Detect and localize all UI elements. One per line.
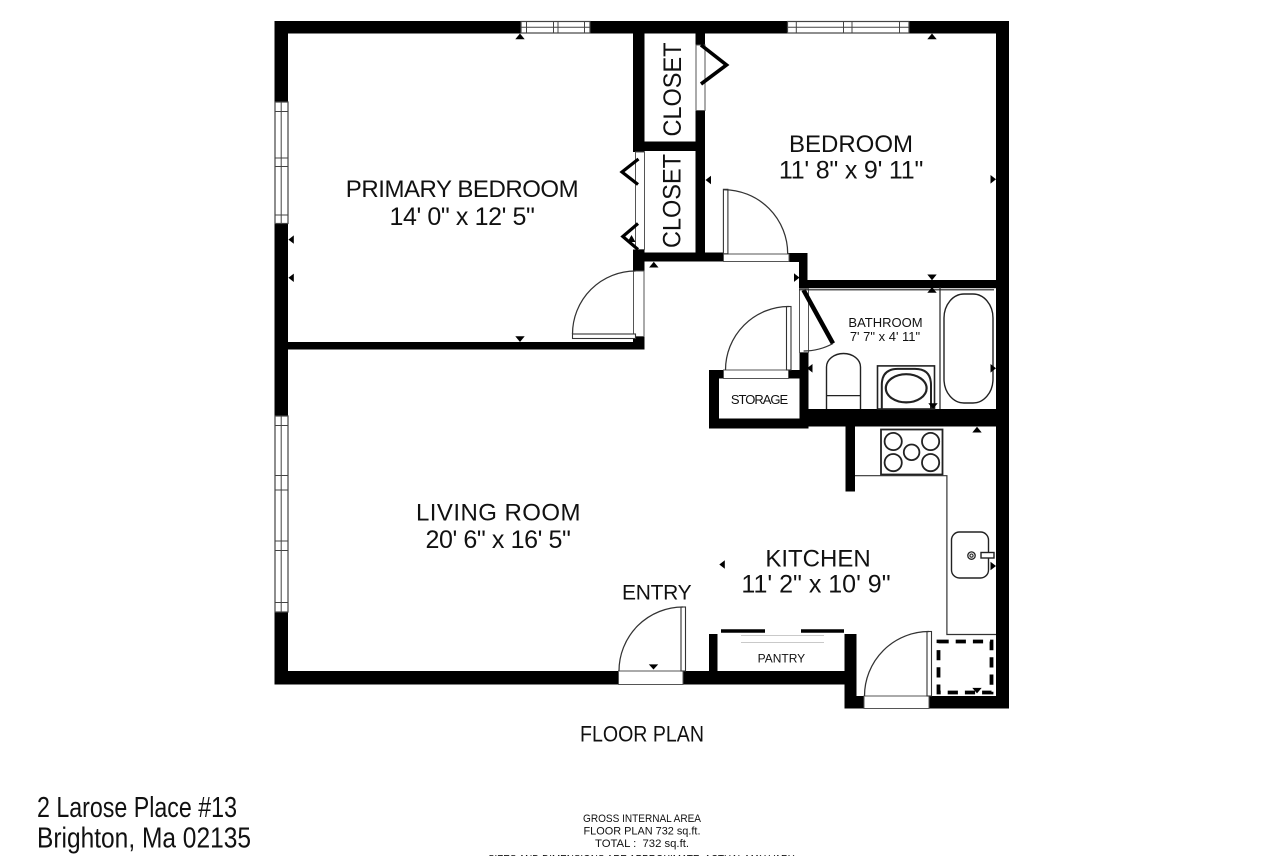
svg-text:11' 2" x 10' 9": 11' 2" x 10' 9" <box>741 571 890 599</box>
svg-text:BATHROOM: BATHROOM <box>848 315 922 330</box>
svg-text:TOTAL : 732 sq.ft.: TOTAL : 732 sq.ft. <box>595 838 689 850</box>
svg-text:FLOOR PLAN 732 sq.ft.: FLOOR PLAN 732 sq.ft. <box>584 826 701 838</box>
svg-text:CLOSET: CLOSET <box>659 154 687 248</box>
svg-text:GROSS INTERNAL AREA: GROSS INTERNAL AREA <box>583 813 702 825</box>
svg-text:14' 0" x 12' 5": 14' 0" x 12' 5" <box>389 203 534 231</box>
svg-text:11' 8" x 9' 11": 11' 8" x 9' 11" <box>779 157 923 185</box>
svg-text:7' 7" x 4' 11": 7' 7" x 4' 11" <box>850 329 921 344</box>
svg-text:STORAGE: STORAGE <box>731 392 789 407</box>
svg-text:CLOSET: CLOSET <box>659 43 687 137</box>
svg-text:KITCHEN: KITCHEN <box>765 546 870 573</box>
svg-text:ENTRY: ENTRY <box>622 582 692 605</box>
svg-text:LIVING ROOM: LIVING ROOM <box>416 500 581 527</box>
svg-text:PANTRY: PANTRY <box>758 652 806 666</box>
svg-text:BEDROOM: BEDROOM <box>789 131 913 158</box>
svg-text:2 Larose Place #13: 2 Larose Place #13 <box>37 792 237 824</box>
svg-text:PRIMARY BEDROOM: PRIMARY BEDROOM <box>346 176 578 203</box>
svg-text:20' 6" x 16' 5": 20' 6" x 16' 5" <box>425 526 570 554</box>
svg-text:FLOOR PLAN: FLOOR PLAN <box>580 722 704 747</box>
svg-text:Brighton, Ma 02135: Brighton, Ma 02135 <box>37 823 251 855</box>
